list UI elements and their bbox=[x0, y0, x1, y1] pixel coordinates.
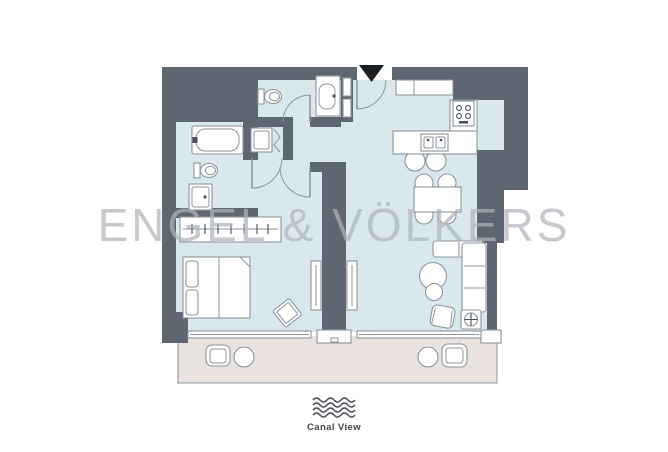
entrance-marker bbox=[359, 65, 384, 82]
waves-icon bbox=[311, 396, 357, 420]
coffee-table-small bbox=[426, 284, 443, 301]
plant-side-table bbox=[461, 310, 481, 329]
watermark: ENGEL & VÖLKERS bbox=[98, 198, 571, 252]
double-bed bbox=[183, 257, 250, 318]
stove bbox=[453, 101, 474, 126]
view-indicator: Canal View bbox=[0, 396, 668, 433]
armchair bbox=[429, 304, 455, 329]
floorplan-image: ENGEL & VÖLKERS Canal View bbox=[0, 0, 668, 452]
sliding-door-right bbox=[347, 261, 357, 310]
view-label: Canal View bbox=[307, 422, 361, 433]
sliding-door-left bbox=[311, 261, 321, 310]
island-counter bbox=[393, 131, 477, 154]
